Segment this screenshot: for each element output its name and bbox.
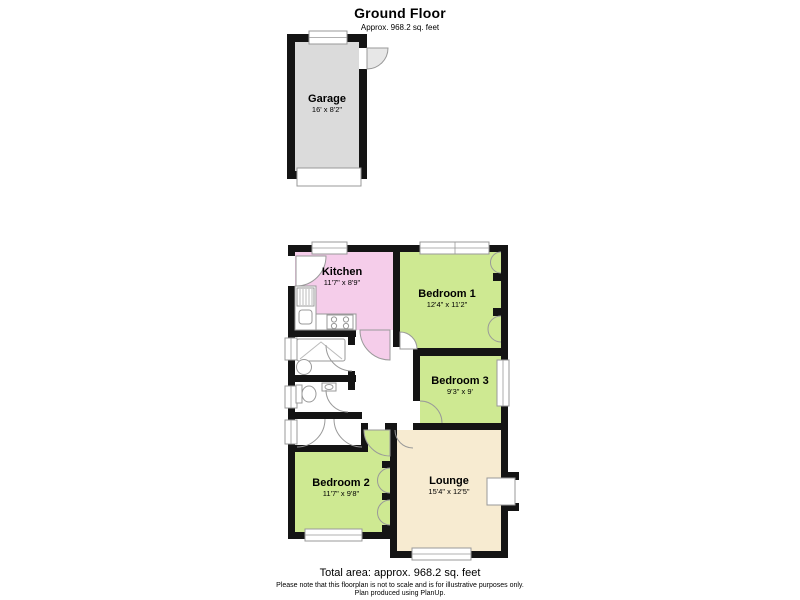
kitchen-hob — [327, 315, 353, 329]
garage-name: Garage — [308, 93, 346, 105]
bedroom1-dims: 12'4" x 11'2" — [418, 300, 475, 309]
garage-main-door — [297, 168, 361, 186]
bedroom2-dims: 11'7" x 9'8" — [312, 489, 369, 498]
hall-cupboard-door-arc-right — [334, 419, 362, 447]
total-area-text: Total area: approx. 968.2 sq. feet — [0, 567, 800, 579]
bedroom2-label: Bedroom 2 11'7" x 9'8" — [312, 477, 369, 498]
toilet-bowl — [302, 386, 316, 402]
garage-dims: 16' x 8'2" — [308, 105, 346, 114]
wc-fixtures — [296, 383, 336, 403]
garage-side-door-arc — [367, 48, 388, 69]
hob-ring — [343, 323, 348, 328]
lounge-dims: 15'4" x 12'5" — [428, 487, 469, 496]
toilet-cistern — [296, 385, 302, 403]
floorplan-page: Ground Floor Approx. 968.2 sq. feet — [0, 0, 800, 600]
bedroom3-label: Bedroom 3 9'3" x 9' — [431, 375, 488, 396]
hob-ring — [331, 323, 336, 328]
kitchen-dims: 11'7" x 8'9" — [322, 278, 362, 287]
bathroom-basin — [297, 360, 312, 375]
hall-cupboard-door-arc-left — [297, 419, 325, 447]
disclaimer-line2: Plan produced using PlanUp. — [0, 590, 800, 597]
hob-ring — [331, 317, 336, 322]
wc-door-arc — [326, 390, 348, 412]
kitchen-sink — [299, 310, 312, 324]
hob-ring — [343, 317, 348, 322]
bedroom3-name: Bedroom 3 — [431, 375, 488, 387]
kitchen-label: Kitchen 11'7" x 8'9" — [322, 266, 362, 287]
floorplan-drawing — [0, 0, 800, 600]
lounge-label: Lounge 15'4" x 12'5" — [428, 475, 469, 496]
kitchen-side-door-opening — [288, 256, 295, 286]
bathroom-fixtures — [297, 339, 346, 375]
kitchen-name: Kitchen — [322, 266, 362, 278]
lounge-chimney-breast — [487, 478, 515, 505]
bedroom2-name: Bedroom 2 — [312, 477, 369, 489]
garage-door-opening — [359, 48, 367, 69]
lounge-name: Lounge — [428, 475, 469, 487]
garage-label: Garage 16' x 8'2" — [308, 93, 346, 114]
kitchen-drainer — [297, 288, 314, 306]
bedroom1-name: Bedroom 1 — [418, 288, 475, 300]
bedroom3-door-opening — [413, 401, 420, 423]
bedroom3-dims: 9'3" x 9' — [431, 387, 488, 396]
bedroom1-label: Bedroom 1 12'4" x 11'2" — [418, 288, 475, 309]
disclaimer-line1: Please note that this floorplan is not t… — [0, 582, 800, 589]
kitchen-hall-door-swing — [360, 330, 390, 360]
